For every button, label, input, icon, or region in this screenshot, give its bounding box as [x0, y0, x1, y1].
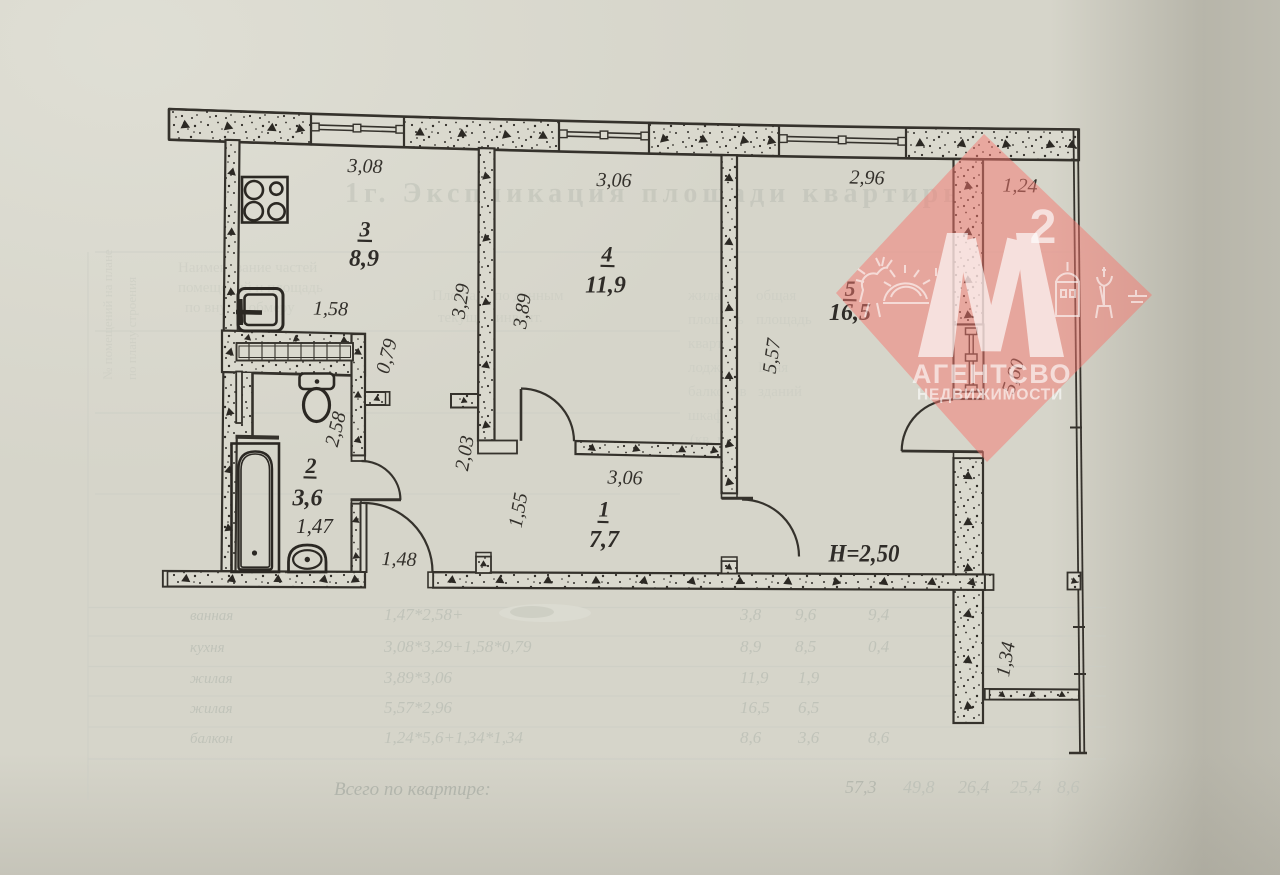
svg-text:8,6: 8,6 — [1057, 777, 1080, 797]
svg-text:3: 3 — [359, 217, 371, 242]
svg-text:9,4: 9,4 — [868, 605, 890, 624]
svg-text:НЕДВИЖИМОСТИ: НЕДВИЖИМОСТИ — [917, 387, 1063, 404]
svg-text:площадь: площадь — [756, 312, 812, 328]
svg-text:2: 2 — [1030, 201, 1057, 254]
svg-text:9,6: 9,6 — [795, 605, 817, 624]
svg-text:3,08*3,29+1,58*0,79: 3,08*3,29+1,58*0,79 — [383, 637, 532, 656]
svg-text:3,08: 3,08 — [346, 155, 383, 178]
svg-text:16,5: 16,5 — [740, 698, 770, 717]
svg-text:3,8: 3,8 — [739, 605, 762, 624]
svg-text:зданий: зданий — [758, 384, 802, 400]
svg-text:8,9: 8,9 — [740, 637, 762, 656]
svg-text:26,4: 26,4 — [958, 777, 990, 797]
svg-text:1,48: 1,48 — [381, 548, 417, 571]
svg-text:Всего по квартире:: Всего по квартире: — [334, 779, 491, 800]
svg-text:1,9: 1,9 — [798, 668, 820, 687]
svg-text:1: 1 — [599, 497, 610, 522]
svg-text:8,6: 8,6 — [740, 728, 762, 747]
svg-text:3,06: 3,06 — [595, 169, 632, 192]
svg-text:4: 4 — [601, 242, 613, 267]
svg-text:общая: общая — [756, 288, 796, 304]
svg-text:57,3: 57,3 — [845, 777, 877, 797]
svg-text:49,8: 49,8 — [903, 777, 935, 797]
svg-text:1,24*5,6+1,34*1,34: 1,24*5,6+1,34*1,34 — [384, 728, 523, 747]
svg-text:3,06: 3,06 — [606, 467, 643, 490]
svg-text:балкон: балкон — [190, 731, 233, 747]
svg-text:2,96: 2,96 — [849, 167, 885, 190]
svg-text:кухня: кухня — [190, 640, 225, 656]
svg-text:№ помещений на плане: № помещений на плане — [100, 249, 115, 380]
svg-text:11,9: 11,9 — [740, 668, 769, 687]
svg-text:жилая: жилая — [190, 701, 233, 717]
svg-text:3,6: 3,6 — [797, 728, 820, 747]
svg-text:5,57*2,96: 5,57*2,96 — [384, 698, 453, 717]
svg-text:АГЕНТСВО: АГЕНТСВО — [912, 359, 1072, 389]
svg-text:1,58: 1,58 — [313, 298, 349, 321]
svg-text:2: 2 — [305, 453, 317, 478]
svg-text:0,4: 0,4 — [868, 637, 890, 656]
svg-text:8,9: 8,9 — [349, 246, 379, 272]
svg-text:3,89*3,06: 3,89*3,06 — [383, 668, 453, 687]
svg-text:7,7: 7,7 — [589, 527, 620, 553]
svg-text:3,6: 3,6 — [292, 486, 323, 512]
svg-text:1,47*2,58+: 1,47*2,58+ — [384, 605, 463, 624]
svg-text:по плану строения: по плану строения — [124, 277, 139, 380]
svg-text:жилая: жилая — [190, 671, 233, 687]
svg-text:H=2,50: H=2,50 — [828, 541, 900, 568]
svg-text:8,6: 8,6 — [868, 728, 890, 747]
svg-text:1,47: 1,47 — [296, 514, 334, 538]
svg-text:6,5: 6,5 — [798, 698, 819, 717]
svg-text:ванная: ванная — [190, 608, 233, 624]
svg-text:8,5: 8,5 — [795, 637, 816, 656]
svg-text:11,9: 11,9 — [585, 273, 626, 299]
svg-text:25,4: 25,4 — [1010, 777, 1042, 797]
svg-text:Наименование частей: Наименование частей — [178, 260, 317, 276]
